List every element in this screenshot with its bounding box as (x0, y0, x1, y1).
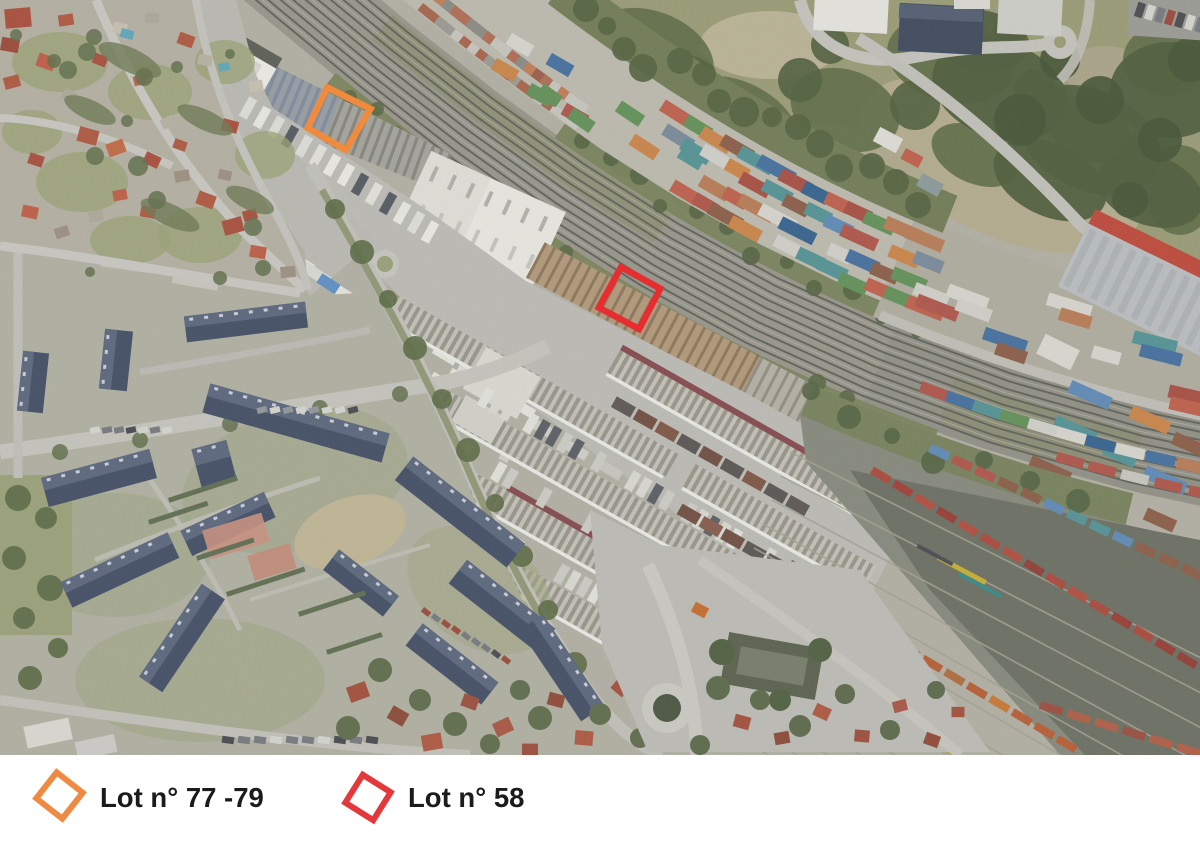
svg-text:Lot n° 77 -79: Lot n° 77 -79 (100, 782, 264, 813)
svg-text:Lot n° 58: Lot n° 58 (408, 782, 524, 813)
